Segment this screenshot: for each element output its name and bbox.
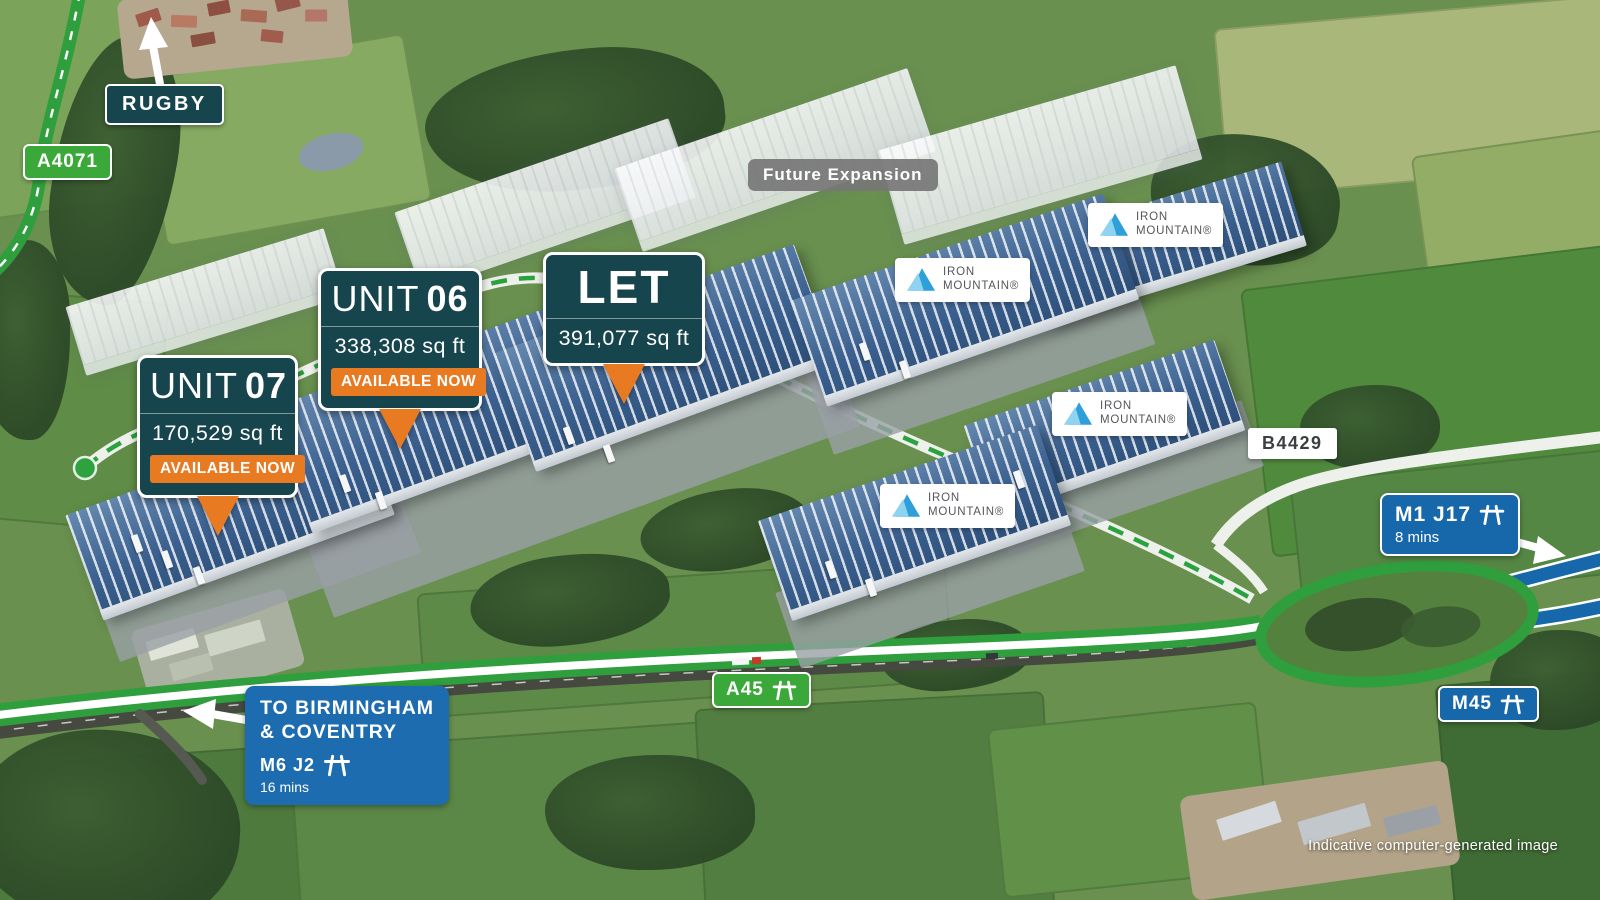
sign-birmingham: TO BIRMINGHAM & COVENTRY M6 J2 16 mins [245, 686, 449, 805]
iron-mountain-logo: IRON MOUNTAIN® [1052, 392, 1187, 436]
mountain-icon [1063, 400, 1093, 427]
rugby-arrow [139, 17, 168, 84]
logo-text: IRON MOUNTAIN® [928, 492, 1004, 520]
motorway-icon [1500, 694, 1525, 715]
m1-arrow [1513, 536, 1566, 564]
motorway-icon [1479, 504, 1505, 526]
callout-unit-07[interactable]: UNIT07 170,529 sq ft AVAILABLE NOW [137, 355, 298, 498]
road-a4071 [0, 0, 80, 272]
divider [140, 413, 295, 414]
sign-b4429: B4429 [1248, 428, 1337, 459]
mountain-icon [906, 266, 936, 293]
aerial-site-plan: IRON MOUNTAIN® IRON MOUNTAIN® IRON MOUNT… [0, 0, 1600, 900]
mountain-icon [891, 492, 921, 519]
sign-future-expansion: Future Expansion [748, 159, 938, 191]
iron-mountain-logo: IRON MOUNTAIN® [895, 258, 1030, 302]
motorway-icon [772, 680, 797, 701]
vehicle [986, 653, 998, 660]
iron-mountain-logo: IRON MOUNTAIN® [880, 484, 1015, 528]
unit-07-area: 170,529 sq ft [150, 421, 285, 446]
roundabout [1254, 552, 1540, 697]
unit-07-title: UNIT07 [150, 366, 285, 406]
let-area: 391,077 sq ft [556, 326, 692, 351]
unit-06-availability-badge: AVAILABLE NOW [331, 368, 486, 396]
callout-unit-06[interactable]: UNIT06 338,308 sq ft AVAILABLE NOW [318, 268, 482, 411]
sign-rugby: RUGBY [105, 84, 224, 125]
divider [321, 326, 479, 327]
footnote: Indicative computer-generated image [1308, 838, 1558, 854]
logo-text: IRON MOUNTAIN® [1100, 400, 1176, 428]
logo-text: IRON MOUNTAIN® [1136, 211, 1212, 239]
unit-07-availability-badge: AVAILABLE NOW [150, 455, 305, 483]
sign-m45: M45 [1438, 686, 1539, 722]
vehicle [732, 658, 749, 666]
site-entrance-dot [74, 457, 96, 479]
vehicle [752, 657, 761, 664]
motorway-icon [323, 754, 351, 777]
slip-road [140, 714, 202, 780]
unit-06-title: UNIT06 [331, 279, 469, 319]
iron-mountain-logo: IRON MOUNTAIN® [1088, 203, 1223, 247]
sign-m1-j17: M1 J17 8 mins [1380, 493, 1520, 556]
unit-06-area: 338,308 sq ft [331, 334, 469, 359]
sign-a4071: A4071 [23, 144, 112, 180]
mountain-icon [1099, 211, 1129, 238]
logo-text: IRON MOUNTAIN® [943, 266, 1019, 294]
callout-let[interactable]: LET 391,077 sq ft [543, 252, 705, 366]
let-title: LET [556, 263, 692, 311]
divider [546, 318, 702, 319]
sign-a45: A45 [712, 672, 811, 708]
